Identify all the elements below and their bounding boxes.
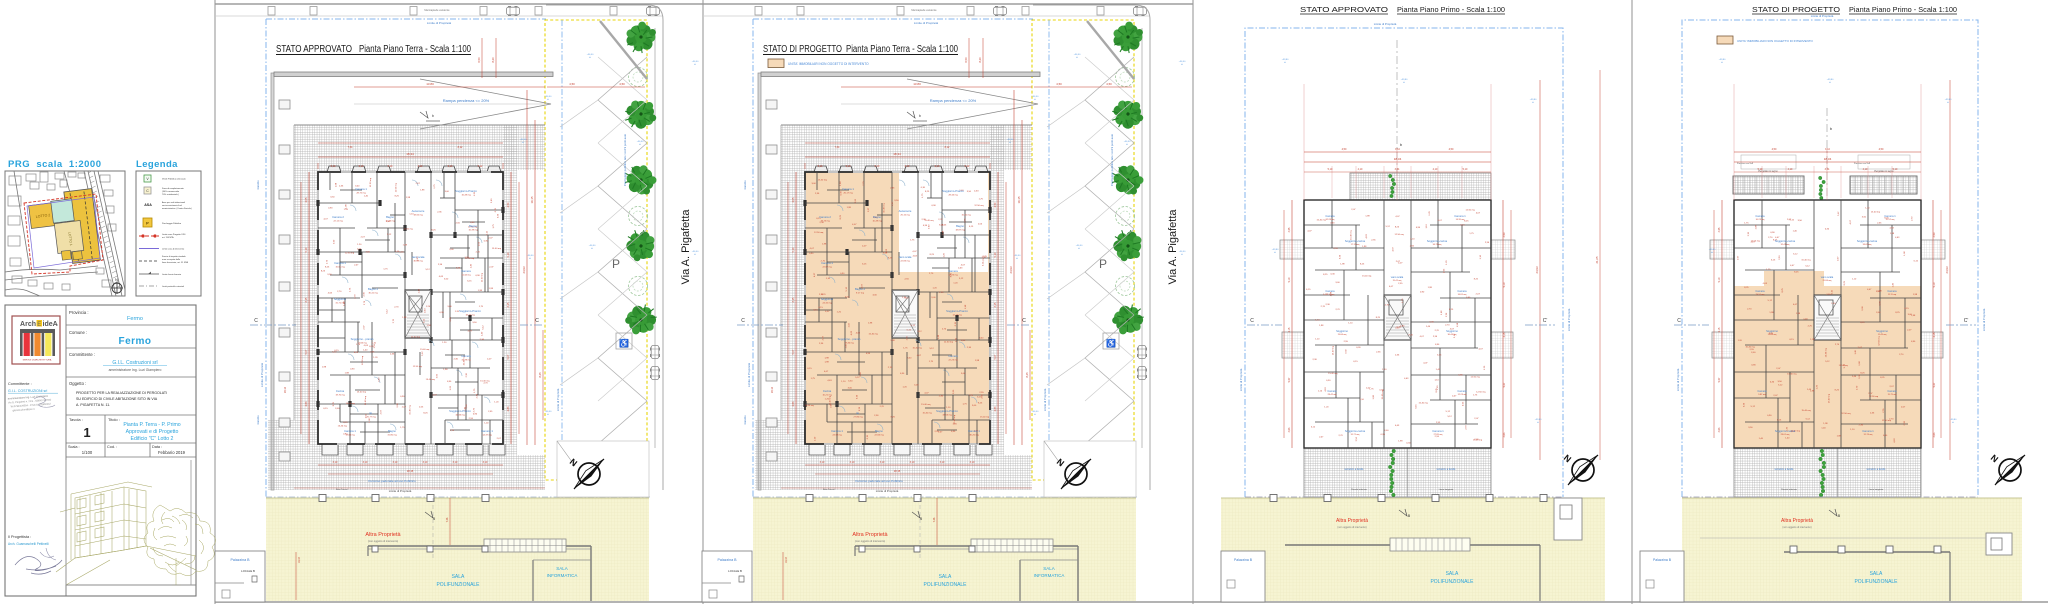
svg-text:3,15: 3,15 [1288, 327, 1291, 332]
svg-text:25.77 mq: 25.77 mq [366, 416, 376, 418]
svg-text:(30% commerciale: (30% commerciale [162, 190, 180, 193]
svg-text:11.34 mq: 11.34 mq [462, 274, 472, 276]
svg-text:15.40 mq: 15.40 mq [884, 203, 886, 213]
svg-text:5,10: 5,10 [1288, 277, 1291, 282]
svg-text:7,36: 7,36 [933, 517, 936, 522]
svg-text:(non oggetto di intervento): (non oggetto di intervento) [368, 539, 398, 543]
svg-text:⊕: ⊕ [1034, 413, 1036, 416]
svg-text:G.I.L. Costruzioni srl: G.I.L. Costruzioni srl [112, 360, 157, 366]
svg-text:Camera 1: Camera 1 [1454, 214, 1466, 218]
svg-text:12.50 mq: 12.50 mq [362, 355, 364, 365]
svg-text:7,36: 7,36 [446, 517, 449, 522]
svg-text:+36,50: +36,50 [692, 251, 700, 253]
svg-text:28.42 mq: 28.42 mq [1328, 394, 1338, 396]
svg-text:Parcheggio Pubblico: Parcheggio Pubblico [162, 222, 182, 225]
svg-text:+36,50: +36,50 [1179, 61, 1187, 63]
svg-text:Camera: Camera [461, 269, 471, 273]
svg-text:vano scala: vano scala [899, 255, 912, 259]
svg-text:3,15: 3,15 [305, 297, 308, 302]
svg-text:Approvati e di Progetto: Approvati e di Progetto [126, 429, 179, 435]
svg-text:Soggiorno - pranzo: Soggiorno - pranzo [838, 337, 861, 341]
svg-text:+36,50: +36,50 [692, 61, 700, 63]
svg-text:STATO APPROVATO: STATO APPROVATO [276, 44, 352, 55]
svg-text:+36,50: +36,50 [1032, 411, 1040, 413]
svg-text:3,10: 3,10 [910, 461, 915, 464]
svg-text:Camera 1: Camera 1 [481, 429, 493, 433]
svg-text:ideA: ideA [43, 321, 58, 328]
svg-text:6,50: 6,50 [964, 57, 968, 63]
svg-text:32.33 mq: 32.33 mq [455, 414, 465, 416]
svg-text:Via A. Pigafetta: Via A. Pigafetta [680, 209, 692, 285]
svg-text:Limite area Progetto V.36: Limite area Progetto V.36 [162, 233, 186, 236]
svg-text:Limite di Proprietà: Limite di Proprietà [1567, 308, 1571, 331]
svg-text:3,15: 3,15 [507, 302, 510, 307]
svg-text:Limite di Proprietà: Limite di Proprietà [556, 388, 560, 411]
svg-text:C: C [1677, 318, 1681, 324]
svg-text:Limite di Proprietà: Limite di Proprietà [1239, 368, 1243, 391]
svg-text:15.40 mq: 15.40 mq [1328, 373, 1338, 375]
svg-text:Soggiorno-Pranzo: Soggiorno-Pranzo [946, 309, 968, 313]
svg-text:18.25 mq: 18.25 mq [465, 314, 475, 316]
svg-text:Rampa pendenza <= 20%: Rampa pendenza <= 20% [443, 98, 490, 103]
svg-text:Bagno 2: Bagno 2 [368, 287, 379, 291]
svg-text:Altra Proprietà: Altra Proprietà [852, 532, 888, 538]
svg-text:5,10: 5,10 [1718, 277, 1721, 282]
svg-text:4,50: 4,50 [994, 202, 997, 207]
svg-text:29,10: 29,10 [771, 386, 774, 393]
svg-text:⊕: ⊕ [1403, 81, 1405, 84]
svg-text:Soggiorno: Soggiorno [1876, 329, 1888, 333]
svg-text:15.75 mq: 15.75 mq [1888, 394, 1898, 396]
svg-text:⊕: ⊕ [1126, 143, 1128, 146]
svg-text:Soggiorno: Soggiorno [1766, 329, 1778, 333]
svg-text:18.87 mq: 18.87 mq [955, 229, 965, 231]
svg-text:Limite area di intervento: Limite area di intervento [162, 248, 185, 251]
svg-text:4,50: 4,50 [1449, 148, 1454, 151]
svg-text:SALA: SALA [452, 574, 465, 580]
svg-text:STATO APPROVATO: STATO APPROVATO [1300, 5, 1388, 14]
svg-text:Fascia di rispetto stradale: Fascia di rispetto stradale [162, 255, 187, 258]
svg-text:25.84 mq: 25.84 mq [1823, 280, 1833, 282]
svg-text:18,15: 18,15 [894, 469, 901, 473]
svg-text:22.12 mq: 22.12 mq [333, 220, 343, 222]
svg-text:Camera: Camera [1325, 214, 1335, 218]
svg-text:32.52 mq: 32.52 mq [1886, 219, 1896, 221]
svg-text:Data :: Data : [152, 445, 162, 449]
svg-text:17.15 mq: 17.15 mq [1351, 244, 1361, 246]
svg-text:+36,50: +36,50 [1124, 141, 1132, 143]
svg-text:+39,80: +39,80 [1827, 79, 1835, 81]
svg-text:+39,80: +39,80 [1709, 249, 1717, 251]
svg-text:SALA: SALA [1043, 566, 1055, 571]
svg-text:(non oggetto di intervento): (non oggetto di intervento) [1782, 526, 1811, 529]
svg-text:Piastrino cm 9x9: Piastrino cm 9x9 [1737, 162, 1754, 165]
svg-text:12.17 mq: 12.17 mq [952, 314, 962, 316]
svg-text:Camera: Camera [1327, 389, 1337, 393]
svg-text:A. PIGAFETTA N. 11.: A. PIGAFETTA N. 11. [76, 403, 110, 407]
svg-text:Pergolato in legno: Pergolato in legno [1874, 170, 1894, 173]
svg-text:Altra Proprietà: Altra Proprietà [1336, 518, 1368, 524]
svg-text:12.50 mq: 12.50 mq [814, 232, 824, 234]
svg-text:4,50: 4,50 [507, 202, 510, 207]
svg-text:.: . [57, 321, 58, 327]
svg-text:5,10: 5,10 [1503, 282, 1506, 287]
svg-text:12.50 mq: 12.50 mq [413, 366, 423, 368]
svg-text:19,15: 19,15 [530, 196, 534, 203]
svg-text:12.50 mq: 12.50 mq [396, 182, 398, 192]
svg-text:3,15: 3,15 [994, 302, 997, 307]
svg-text:4,63: 4,63 [994, 406, 997, 411]
svg-text:4,63: 4,63 [507, 406, 510, 411]
svg-text:+39,80: +39,80 [1530, 99, 1538, 101]
svg-text:Pianale inferiore: Pianale inferiore [1781, 488, 1798, 491]
svg-text:Bagno: Bagno [388, 429, 396, 433]
svg-text:Limite di Proprietà: Limite di Proprietà [1374, 22, 1397, 26]
svg-text:3,10: 3,10 [905, 165, 910, 168]
svg-text:Camera: Camera [1887, 389, 1897, 393]
svg-text:Tavola :: Tavola : [69, 417, 83, 422]
svg-text:⊕: ⊕ [1274, 251, 1276, 254]
svg-text:Pianta Piano Terra - Scala 1:1: Pianta Piano Terra - Scala 1:100 [359, 44, 471, 55]
svg-text:Committente :: Committente : [8, 382, 32, 386]
svg-text:27.85 mq: 27.85 mq [1434, 434, 1444, 436]
svg-text:Via A. Pigafetta: Via A. Pigafetta [1167, 209, 1179, 285]
svg-text:3,15: 3,15 [792, 297, 795, 302]
svg-text:+36,50: +36,50 [527, 255, 535, 257]
svg-text:Palazzina B: Palazzina B [1234, 558, 1253, 562]
svg-text:12.50 mq: 12.50 mq [1476, 392, 1486, 394]
svg-text:POLIFUNZIONALE: POLIFUNZIONALE [436, 582, 480, 588]
svg-text:+36,50: +36,50 [520, 139, 528, 141]
svg-text:Soggiorno-Pranzo: Soggiorno-Pranzo [942, 189, 964, 193]
svg-text:24,93: 24,93 [1535, 266, 1539, 273]
svg-text:G.I.L. COSTRUZIONI srl: G.I.L. COSTRUZIONI srl [8, 389, 48, 393]
svg-text:Scala :: Scala : [68, 445, 80, 449]
svg-text:5,10: 5,10 [331, 165, 336, 168]
svg-text:+36,50: +36,50 [1032, 96, 1040, 98]
svg-text:+36,50: +36,50 [1014, 255, 1022, 257]
svg-text:3,10: 3,10 [333, 461, 338, 464]
svg-text:5,12: 5,12 [478, 165, 483, 168]
svg-text:12.50 mq: 12.50 mq [1839, 365, 1849, 367]
svg-text:b: b [919, 114, 921, 118]
svg-text:23.74 mq: 23.74 mq [948, 274, 958, 276]
svg-text:SALA: SALA [1870, 571, 1883, 577]
svg-text:Camera: Camera [948, 354, 958, 358]
svg-text:24.59 mq: 24.59 mq [832, 434, 842, 436]
svg-text:15.40 mq: 15.40 mq [1801, 260, 1811, 262]
svg-text:4,50: 4,50 [1933, 232, 1936, 237]
svg-text:terrazzo a livello: terrazzo a livello [1437, 467, 1456, 471]
svg-text:15.40 mq: 15.40 mq [922, 413, 932, 415]
svg-text:Soggiorno-cucina: Soggiorno-cucina [1345, 429, 1366, 433]
svg-text:18,15: 18,15 [407, 469, 414, 473]
svg-text:28.61 mq: 28.61 mq [1781, 434, 1791, 436]
svg-text:5,10: 5,10 [1893, 168, 1898, 171]
svg-text:31.78 mq: 31.78 mq [461, 359, 471, 361]
svg-text:Ascensore: Ascensore [899, 209, 912, 213]
svg-text:Camera: Camera [948, 269, 958, 273]
svg-text:16.39 mq: 16.39 mq [468, 229, 478, 231]
svg-text:21,65: 21,65 [1595, 256, 1599, 263]
svg-text:Limiti particelle catastali: Limiti particelle catastali [162, 285, 184, 288]
svg-text:Limite di Proprietà: Limite di Proprietà [1043, 388, 1047, 411]
svg-text:31.80 mq: 31.80 mq [387, 434, 397, 436]
svg-text:Camera 1: Camera 1 [355, 187, 367, 191]
svg-text:15.40 mq: 15.40 mq [346, 403, 356, 405]
svg-text:18,34: 18,34 [893, 152, 901, 156]
svg-text:Camera 1: Camera 1 [831, 429, 843, 433]
svg-text:4,05: 4,05 [305, 197, 308, 202]
svg-text:12.50 mq: 12.50 mq [345, 252, 355, 254]
svg-text:amministrative. (Centro Social: amministrative. (Centro Sociale) [162, 207, 192, 210]
svg-text:Parcheggio pubblico lato nord: Parcheggio pubblico lato nord 9 posti au… [1110, 133, 1114, 186]
svg-text:vano scala: vano scala [1391, 275, 1404, 279]
svg-text:3,15: 3,15 [1718, 327, 1721, 332]
svg-text:15.40 mq: 15.40 mq [1828, 393, 1830, 403]
svg-text:⊕: ⊕ [1181, 253, 1183, 256]
svg-text:29,10: 29,10 [284, 386, 287, 393]
svg-text:Camera 1: Camera 1 [968, 429, 980, 433]
svg-text:15.40 mq: 15.40 mq [912, 347, 922, 349]
svg-text:12.50 mq: 12.50 mq [1841, 413, 1851, 415]
svg-text:Soggiorno-cucina: Soggiorno-cucina [1775, 239, 1796, 243]
svg-text:8,20: 8,20 [491, 57, 495, 63]
svg-text:14.35 mq: 14.35 mq [1456, 219, 1466, 221]
svg-text:Camera 3: Camera 3 [334, 261, 346, 265]
svg-text:Camera: Camera [1457, 389, 1467, 393]
svg-text:22.83 mq: 22.83 mq [900, 260, 910, 262]
svg-text:E: E [37, 322, 41, 328]
svg-text:10.23 mq: 10.23 mq [1756, 219, 1766, 221]
svg-text:5,10: 5,10 [507, 252, 510, 257]
svg-text:Palazzina B: Palazzina B [1653, 558, 1672, 562]
svg-text:15.40 mq: 15.40 mq [805, 405, 815, 407]
svg-text:7,34: 7,34 [835, 146, 840, 149]
svg-text:12.50 mq: 12.50 mq [404, 228, 414, 230]
svg-text:15.40 mq: 15.40 mq [1333, 345, 1335, 355]
svg-text:12.23 mq: 12.23 mq [1458, 394, 1468, 396]
svg-text:Rete Tecnol.: Rete Tecnol. [336, 488, 349, 491]
svg-text:Rete Tecnol.: Rete Tecnol. [823, 488, 836, 491]
svg-text:Soggiorno-cucina: Soggiorno-cucina [1345, 239, 1366, 243]
svg-text:8,20: 8,20 [978, 57, 982, 63]
svg-text:Camera: Camera [461, 354, 471, 358]
svg-text:Limite di Proprietà: Limite di Proprietà [427, 21, 452, 25]
svg-text:18,34: 18,34 [1394, 157, 1402, 161]
svg-text:UNITA' IMMOBILIARI NON OGGETTO: UNITA' IMMOBILIARI NON OGGETTO DI INTERV… [788, 62, 869, 66]
svg-text:Provincia :: Provincia : [69, 310, 89, 315]
svg-text:15.40 mq: 15.40 mq [357, 391, 367, 393]
svg-text:12.50 mq: 12.50 mq [465, 258, 475, 260]
svg-text:7,34: 7,34 [348, 146, 353, 149]
svg-text:3,10: 3,10 [970, 461, 975, 464]
svg-text:Parcheggio pubblico lato nord: Parcheggio pubblico lato nord 9 posti au… [623, 133, 627, 186]
svg-text:17.84 mq: 17.84 mq [357, 342, 367, 344]
svg-text:+36,50: +36,50 [1076, 245, 1084, 247]
svg-text:9,10: 9,10 [1825, 148, 1830, 151]
svg-text:4,05: 4,05 [1718, 227, 1721, 232]
svg-text:4,63: 4,63 [1718, 427, 1721, 432]
svg-text:LOCALE B: LOCALE B [241, 569, 255, 573]
svg-text:3,10: 3,10 [393, 461, 398, 464]
svg-text:⊕: ⊕ [1076, 56, 1078, 59]
svg-text:Oggetto :: Oggetto : [69, 381, 86, 386]
svg-text:Camera 2: Camera 2 [819, 215, 831, 219]
svg-text:Linea tangente: Linea tangente [1439, 488, 1454, 491]
svg-text:18,34: 18,34 [1824, 157, 1832, 161]
svg-text:13.80: 13.80 [426, 82, 434, 86]
svg-text:4,50: 4,50 [1503, 232, 1506, 237]
svg-text:⊕: ⊕ [589, 56, 591, 59]
svg-text:Percorso pedonale ad uso Pubbl: Percorso pedonale ad uso Pubblico [855, 479, 903, 483]
svg-text:10.47 mq: 10.47 mq [385, 220, 395, 222]
svg-text:4,05: 4,05 [792, 197, 795, 202]
svg-text:5,10: 5,10 [818, 165, 823, 168]
svg-text:5,10: 5,10 [792, 247, 795, 252]
svg-text:⊕: ⊕ [1009, 141, 1011, 144]
svg-text:4,50: 4,50 [619, 82, 625, 86]
svg-text:19.46 mq: 19.46 mq [844, 342, 854, 344]
svg-text:⊕: ⊕ [694, 63, 696, 66]
svg-text:C: C [535, 318, 539, 324]
svg-text:28.34 mq: 28.34 mq [948, 194, 958, 196]
svg-text:INFORMATICA: INFORMATICA [1034, 573, 1065, 578]
svg-text:24.32 mq: 24.32 mq [822, 302, 832, 304]
svg-text:12.50 mq: 12.50 mq [482, 272, 484, 282]
svg-text:15.40 mq: 15.40 mq [961, 214, 971, 216]
svg-text:Committente :: Committente : [69, 352, 95, 357]
svg-text:⊕: ⊕ [1952, 421, 1954, 424]
svg-text:33.53 mq: 33.53 mq [942, 414, 952, 416]
svg-text:12.50 mq: 12.50 mq [1395, 234, 1405, 236]
svg-text:31.71 mq: 31.71 mq [1351, 434, 1361, 436]
svg-text:12.50 mq: 12.50 mq [411, 337, 421, 339]
svg-text:Camera 2: Camera 2 [332, 215, 344, 219]
svg-text:Giardino: Giardino [257, 180, 260, 190]
svg-text:15.40 mq: 15.40 mq [409, 405, 411, 415]
svg-text:Bagno: Bagno [386, 215, 394, 219]
svg-text:19.66 mq: 19.66 mq [1338, 334, 1348, 336]
svg-text:⊕: ⊕ [1711, 251, 1713, 254]
svg-text:5,07: 5,07 [994, 354, 997, 359]
svg-text:15.40 mq: 15.40 mq [1362, 275, 1372, 277]
svg-text:Camera: Camera [1755, 289, 1765, 293]
svg-text:Soggiorno: Soggiorno [1336, 329, 1348, 333]
svg-text:32.28 mq: 32.28 mq [1326, 219, 1336, 221]
svg-text:17.20 mq: 17.20 mq [1326, 294, 1336, 296]
svg-text:amministratore Ing. Luzi Giamp: amministratore Ing. Luzi Giampiero [109, 368, 162, 372]
svg-text:15.40 mq: 15.40 mq [1826, 347, 1828, 357]
svg-text:24,93: 24,93 [1945, 266, 1949, 273]
svg-text:16,44: 16,44 [298, 556, 301, 563]
svg-text:9.17 mq: 9.17 mq [856, 292, 865, 294]
svg-text:30.44 mq: 30.44 mq [1448, 334, 1458, 336]
svg-text:STATO DI PROGETTO: STATO DI PROGETTO [763, 44, 842, 55]
svg-text:+36,50: +36,50 [1074, 54, 1082, 56]
svg-text:Soggiorno-Pranzo: Soggiorno-Pranzo [459, 309, 481, 313]
svg-text:Limite fascia ferrovia: Limite fascia ferrovia [162, 273, 182, 276]
svg-text:19.70 mq: 19.70 mq [335, 394, 345, 396]
svg-text:1: 1 [83, 425, 90, 440]
svg-text:⊕: ⊕ [1016, 257, 1018, 260]
svg-text:30.41 mq: 30.41 mq [368, 292, 378, 294]
svg-text:Pianta Piano Primo - Scala 1:1: Pianta Piano Primo - Scala 1:100 [1849, 5, 1957, 14]
svg-text:13.88 mq: 13.88 mq [1768, 334, 1778, 336]
svg-text:5,10: 5,10 [1328, 168, 1333, 171]
svg-text:Comune :: Comune : [69, 330, 87, 335]
svg-text:Legenda: Legenda [136, 159, 178, 170]
svg-text:9,10: 9,10 [846, 165, 851, 168]
svg-text:9,10: 9,10 [935, 165, 940, 168]
svg-text:3,10: 3,10 [483, 461, 488, 464]
svg-text:+39,80: +39,80 [1401, 79, 1409, 81]
svg-text:9.82 mq: 9.82 mq [1758, 394, 1766, 396]
svg-text:4,63: 4,63 [305, 401, 308, 406]
svg-text:PRG scala 1:2000: PRG scala 1:2000 [8, 159, 102, 170]
svg-text:P: P [1099, 257, 1107, 271]
svg-text:Limite di Proprietà: Limite di Proprietà [260, 363, 264, 388]
svg-text:P: P [146, 221, 149, 226]
svg-text:⊕: ⊕ [1078, 247, 1080, 250]
svg-text:LOCALE B: LOCALE B [728, 569, 742, 573]
svg-text:12.50 mq: 12.50 mq [1869, 396, 1879, 398]
svg-text:15.41 mq: 15.41 mq [1393, 280, 1403, 282]
svg-text:Marciapiede esistente: Marciapiede esistente [911, 8, 937, 12]
svg-text:15.40 mq: 15.40 mq [420, 349, 430, 351]
svg-text:PROGETTO PER LA REALIAZZAZIONE: PROGETTO PER LA REALIAZZAZIONE DI PERGOL… [76, 391, 167, 395]
svg-text:15.40 mq: 15.40 mq [1350, 230, 1352, 240]
svg-text:Giardino: Giardino [744, 415, 747, 425]
svg-text:3,10: 3,10 [363, 461, 368, 464]
svg-text:C: C [254, 318, 258, 324]
svg-text:⊕: ⊕ [547, 413, 549, 416]
svg-text:Cod. :: Cod. : [107, 445, 117, 449]
svg-text:♿: ♿ [1106, 338, 1116, 348]
svg-text:31.76 mq: 31.76 mq [1864, 434, 1874, 436]
svg-text:15.40 mq: 15.40 mq [818, 180, 828, 182]
svg-text:Pianta P. Terra - P. Primo: Pianta P. Terra - P. Primo [123, 422, 180, 428]
svg-text:+39,80: +39,80 [1945, 99, 1953, 101]
svg-text:Soggiorno-cucina: Soggiorno-cucina [1857, 239, 1878, 243]
svg-text:9,10: 9,10 [448, 165, 453, 168]
svg-text:15.40 mq: 15.40 mq [980, 416, 990, 418]
svg-text:rip.: rip. [856, 411, 860, 415]
svg-text:⊕: ⊕ [522, 141, 524, 144]
svg-text:Zona di completamento: Zona di completamento [162, 187, 185, 190]
svg-text:16.81 mq: 16.81 mq [1458, 294, 1468, 296]
svg-text:15.40 mq: 15.40 mq [480, 380, 490, 382]
svg-text:C: C [741, 318, 745, 324]
svg-text:terrazzo a livello: terrazzo a livello [1867, 467, 1886, 471]
svg-text:Ascensore: Ascensore [412, 209, 425, 213]
svg-text:vano scala: vano scala [412, 255, 425, 259]
svg-text:16.49 mq: 16.49 mq [461, 194, 471, 196]
svg-text:Arch. Guarnaschelli Pettinelli: Arch. Guarnaschelli Pettinelli [8, 542, 49, 546]
svg-text:Altra Proprietà: Altra Proprietà [1781, 518, 1813, 524]
svg-text:4,10: 4,10 [1863, 168, 1868, 171]
svg-text:11.11 mq: 11.11 mq [1888, 294, 1897, 296]
svg-text:rip.: rip. [369, 411, 373, 415]
svg-text:3,10: 3,10 [453, 461, 458, 464]
svg-text:4,10: 4,10 [1433, 168, 1438, 171]
svg-text:+36,50: +36,50 [1179, 251, 1187, 253]
svg-text:+36,50: +36,50 [545, 96, 553, 98]
svg-text:5,07: 5,07 [1933, 382, 1936, 387]
svg-text:b: b [432, 114, 434, 118]
svg-text:1/100: 1/100 [82, 450, 93, 455]
svg-text:Pianta Piano Terra - Scala 1:1: Pianta Piano Terra - Scala 1:100 [846, 44, 958, 55]
